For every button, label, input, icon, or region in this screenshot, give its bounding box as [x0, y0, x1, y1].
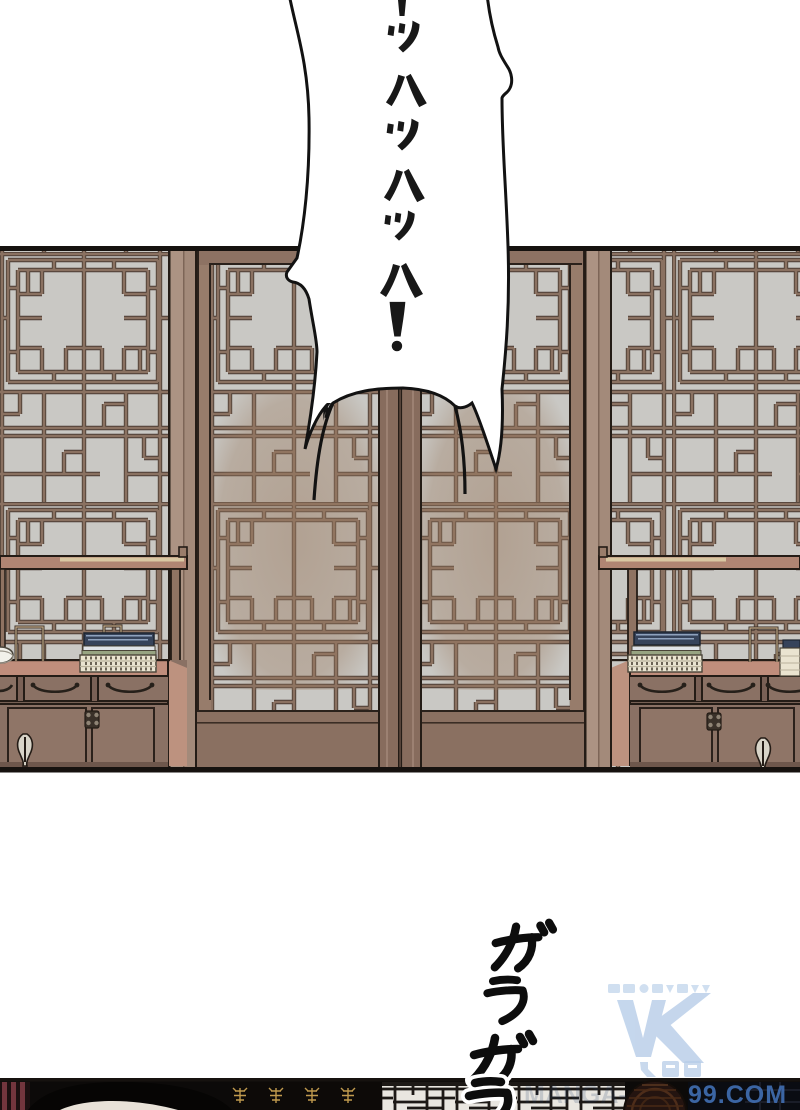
svg-text:MANGA-: MANGA-	[524, 1081, 627, 1109]
svg-text:99.COM: 99.COM	[688, 1081, 787, 1109]
